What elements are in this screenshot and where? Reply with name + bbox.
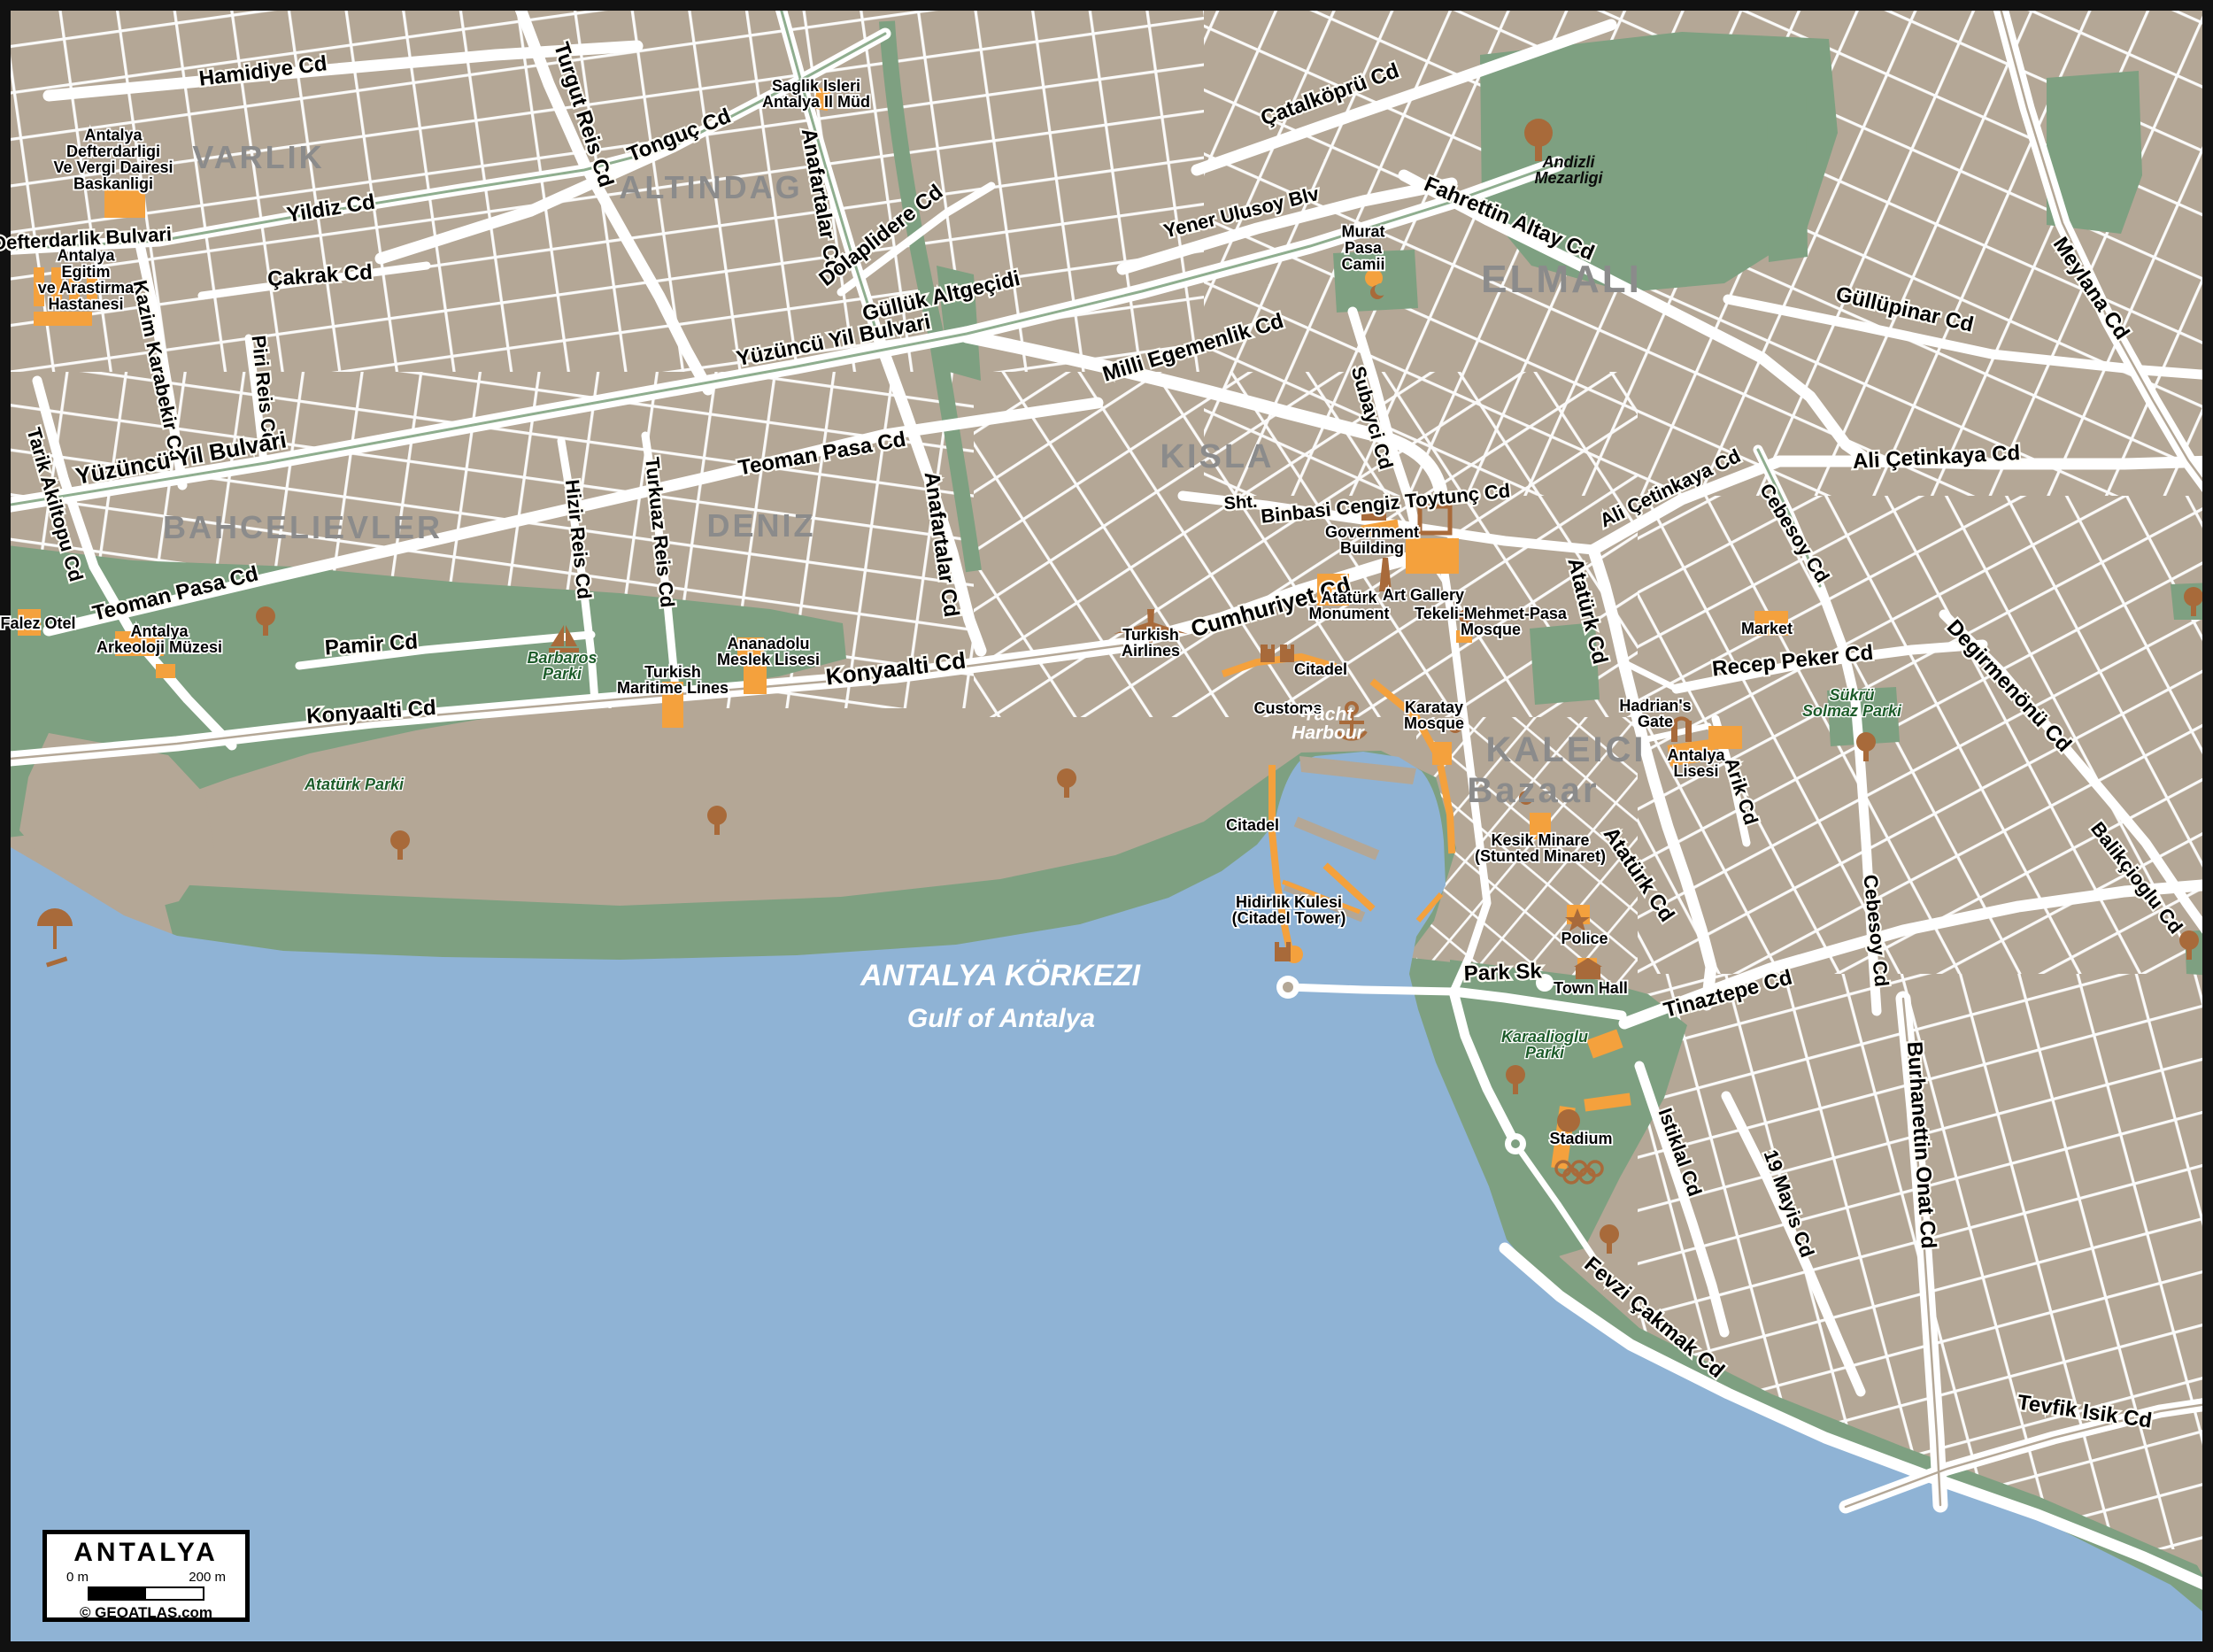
district-label-deniz: DENIZ <box>707 507 816 544</box>
poi-label-kesik-minare-stunted-minaret: Kesik Minare(Stunted Minaret) <box>1475 831 1606 865</box>
poi-label-citadel: Citadel <box>1226 816 1279 834</box>
legend-scale-bar <box>88 1586 204 1601</box>
poi-label-stadium: Stadium <box>1549 1130 1612 1147</box>
district-label-bahcelievler: BAHCELIEVLER <box>163 509 443 545</box>
poi-label-karatay-mosque: KaratayMosque <box>1404 699 1464 732</box>
poi-label-citadel: Citadel <box>1294 660 1347 678</box>
legend-copyright: © GEOATLAS.com <box>47 1604 245 1622</box>
district-label-altindag: ALTINDAG <box>619 169 802 205</box>
water-label-gulf-of-antalya: Gulf of Antalya <box>907 1004 1095 1033</box>
poi-label-falez-otel: Falez Otel <box>0 614 75 632</box>
poi-label-art-gallery: Art Gallery <box>1383 586 1464 604</box>
legend-scale-end: 200 m <box>189 1570 226 1585</box>
poi-label-police: Police <box>1561 930 1608 947</box>
legend-title: ANTALYA <box>47 1538 245 1568</box>
road-coast-promenade-west <box>1288 987 1453 992</box>
antalya-city-map: VARLIKALTINDAGELMALIBAHCELIEVLERDENIZKIS… <box>0 0 2213 1652</box>
legend-box: ANTALYA 0 m 200 m © GEOATLAS.com <box>42 1530 250 1622</box>
poi-label-saglik-isleri-antalya-il-m-d: Saglik IsleriAntalya Il Müd <box>762 77 870 111</box>
park-label-andizli-mezarligi: AndizliMezarligi <box>1534 153 1603 187</box>
legend-scale-start: 0 m <box>66 1570 89 1585</box>
map-canvas: VARLIKALTINDAGELMALIBAHCELIEVLERDENIZKIS… <box>0 0 2213 1652</box>
building-karatay-mosque <box>1432 742 1452 765</box>
poi-label-town-hall: Town Hall <box>1554 979 1628 997</box>
park-label-atat-rk-parki: Atatürk Parki <box>304 776 405 793</box>
poi-label-hidirlik-kulesi-citadel-tower: Hidirlik Kulesi(Citadel Tower) <box>1232 893 1346 927</box>
district-label-elmali: ELMALI <box>1481 258 1642 301</box>
street-label-park-sk: Park Sk <box>1463 959 1543 985</box>
district-label-varlik: VARLIK <box>192 139 324 175</box>
water-label-antalya-k-rkezi: ANTALYA KÖRKEZI <box>860 959 1142 992</box>
building-art-gallery <box>1406 538 1459 574</box>
poi-label-turkish-airlines: TurkishAirlines <box>1122 626 1180 660</box>
poi-label-market: Market <box>1741 620 1793 637</box>
district-label-kisla: KISLA <box>1160 438 1275 475</box>
district-label-kaleici: KALEICI <box>1486 730 1646 769</box>
poi-label-murat-pasa-camii: MuratPasaCamii <box>1341 223 1384 274</box>
district-label-bazaar: Bazaar <box>1467 771 1599 810</box>
poi-label-ananadolu-meslek-lisesi: AnanadoluMeslek Lisesi <box>717 635 820 668</box>
poi-label-antalya-lisesi: AntalyaLisesi <box>1667 746 1725 780</box>
street-label-sht: Sht. <box>1223 492 1258 514</box>
